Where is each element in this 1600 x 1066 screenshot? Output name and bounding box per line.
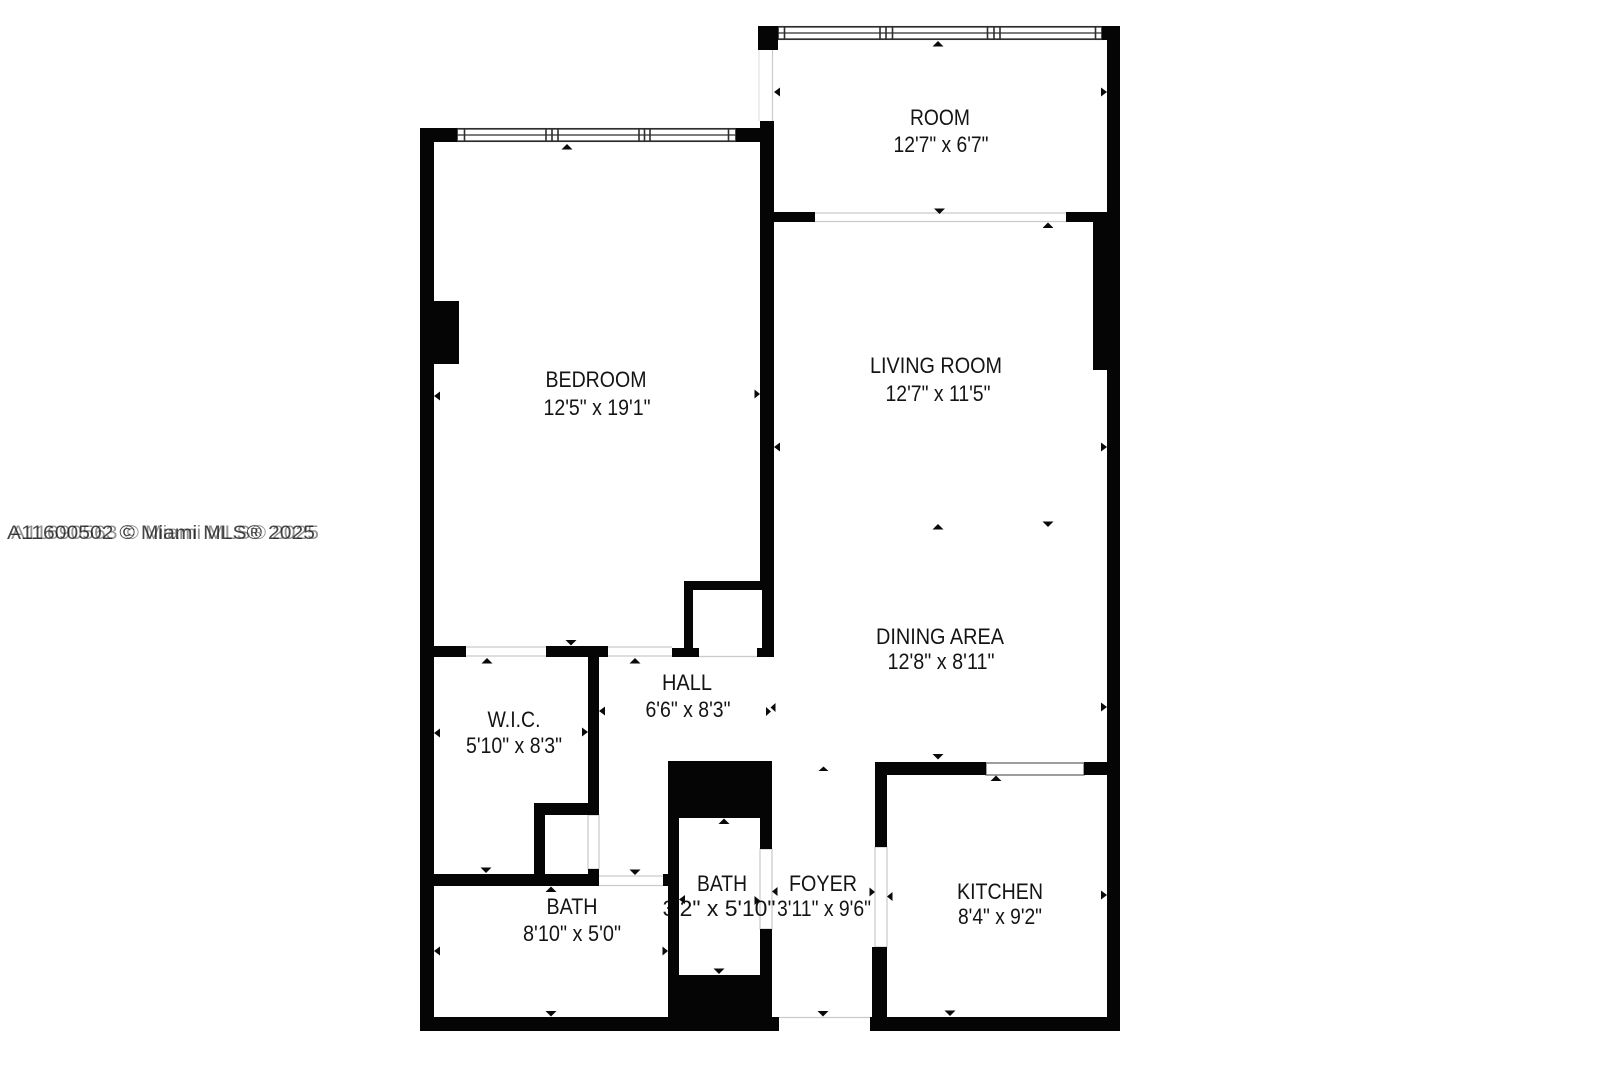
svg-text:3'11" x 9'6": 3'11" x 9'6" <box>777 896 871 921</box>
svg-text:HALL: HALL <box>662 670 712 695</box>
svg-text:12'5" x 19'1": 12'5" x 19'1" <box>544 395 651 420</box>
svg-text:12'7" x 6'7": 12'7" x 6'7" <box>894 132 989 157</box>
svg-text:A11690563 © Miami MLS® 2025: A11690563 © Miami MLS® 2025 <box>11 523 319 544</box>
svg-text:8'10" x 5'0": 8'10" x 5'0" <box>523 921 621 946</box>
svg-text:DINING AREA: DINING AREA <box>876 624 1004 649</box>
svg-text:BATH: BATH <box>697 871 747 896</box>
svg-text:8'4" x 9'2": 8'4" x 9'2" <box>958 904 1042 929</box>
svg-text:FOYER: FOYER <box>789 871 857 896</box>
svg-text:5'10" x 8'3": 5'10" x 8'3" <box>466 733 562 758</box>
svg-text:LIVING ROOM: LIVING ROOM <box>870 353 1002 378</box>
svg-text:12'7" x 11'5": 12'7" x 11'5" <box>886 381 991 406</box>
svg-text:BEDROOM: BEDROOM <box>546 367 647 392</box>
svg-text:ROOM: ROOM <box>910 105 970 130</box>
svg-text:BATH: BATH <box>547 894 598 919</box>
svg-text:6'6" x 8'3": 6'6" x 8'3" <box>646 697 731 722</box>
svg-text:KITCHEN: KITCHEN <box>957 879 1043 904</box>
svg-text:12'8" x 8'11": 12'8" x 8'11" <box>888 649 995 674</box>
svg-text:W.I.C.: W.I.C. <box>488 707 541 732</box>
